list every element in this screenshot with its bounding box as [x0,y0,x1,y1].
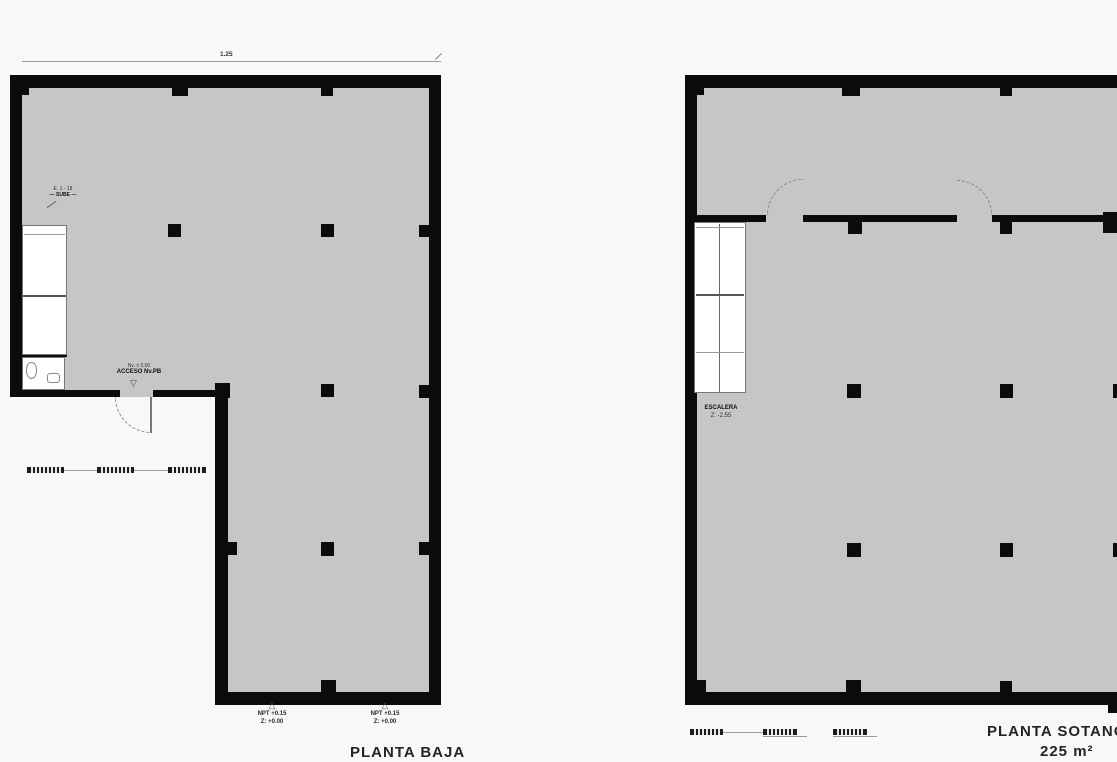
column [215,383,230,398]
wall-entry-right [153,390,217,397]
column [321,384,334,397]
stair-tread-line-top [696,227,744,228]
column-stub [419,542,429,555]
column [847,543,861,557]
column [321,224,334,237]
column-stub [22,88,29,95]
column-stub [697,88,704,95]
column [1000,384,1013,398]
left-plan-title: PLANTA BAJA [350,744,465,761]
fence-segment [763,729,797,735]
level-marker-line2: Z: +0.00 [238,718,306,726]
column-stub [1000,88,1012,96]
stair-center-line [719,224,720,392]
column [321,680,336,693]
column-stub [1000,681,1012,692]
right-floor-plan: ESCALERA Z: -2.55 PLANTA SOTANO 225 m² [680,0,1117,762]
floor-area [685,75,1117,705]
fence-baseline [833,736,877,737]
column-stub [846,680,861,692]
fence-baseline [763,736,807,737]
fence-segment [168,467,206,473]
column-stub [419,385,429,398]
entrance-note-line2: ACCESO Nv.PB [103,369,175,377]
column-stub [842,88,860,96]
wall-bottom [685,692,1117,705]
sink-icon [47,373,60,383]
fence-baseline [723,732,763,733]
level-marker-icon: △ [238,700,306,710]
column [168,224,181,237]
column-stub [217,680,228,692]
fence-segment [27,467,64,473]
level-marker: △ NPT +0.15 Z: +0.00 [238,700,306,726]
wall-bath-bottom [10,390,120,397]
wall-corner-cut [1108,694,1117,713]
column [847,384,861,398]
level-marker-icon: △ [351,700,419,710]
fence-segment [97,467,134,473]
fence-segment [833,729,867,735]
right-plan-area-label: 225 m² [1040,743,1094,760]
column-stub [430,680,441,692]
column-stub [321,88,333,96]
wall-end-cap [1103,212,1117,233]
column-stub [848,222,862,234]
floor-area-upper [10,75,441,397]
stair-note: ESCALERA Z: -2.55 [690,405,752,420]
column-stub [697,680,706,692]
column [1113,543,1117,557]
wall-top [10,75,441,88]
stair-note-line2: — SUBE — [18,192,108,198]
stair-landing-line [696,294,744,296]
stair-note: E. 1 - 18 — SUBE — [18,186,108,199]
wall-inner-left [215,383,228,705]
stair-tread-line-top [24,234,65,235]
column-stub [419,225,429,237]
column [1113,384,1117,398]
wall-interior [992,215,1117,222]
toilet-icon [26,362,37,379]
stairwell [694,222,746,393]
column-stub [1000,222,1012,234]
wall-interior [685,215,766,222]
column-stub [172,88,188,96]
wall-right [429,75,441,705]
wall-left [10,75,22,397]
stair-tread-line [696,352,744,353]
stairwell [22,225,67,355]
door-swing-arc [115,397,151,433]
level-marker-line1: NPT +0.15 [351,710,419,718]
stair-note-line1: ESCALERA [690,405,752,413]
column-stub [228,542,237,555]
dimension-tick [435,53,442,60]
wall-interior [803,215,957,222]
entrance-note: Nv. ± 0.00 ACCESO Nv.PB [103,363,175,377]
wall-top [685,75,1117,88]
level-marker-line1: NPT +0.15 [238,710,306,718]
level-marker-line2: Z: +0.00 [351,718,419,726]
right-plan-title: PLANTA SOTANO [987,723,1117,740]
entrance-marker-icon: ▽ [130,378,137,389]
level-marker: △ NPT +0.15 Z: +0.00 [351,700,419,726]
column [1000,543,1013,557]
stair-note-line2: Z: -2.55 [690,413,752,421]
dimension-label: 1.25 [220,51,233,58]
stair-landing-line [23,295,66,297]
column [321,542,334,556]
left-floor-plan: 1.25 E. 1 - 18 — SUBE — Nv. ± 0.00 ACCES… [0,0,470,762]
fence-segment [690,729,723,735]
dimension-line [22,61,441,62]
